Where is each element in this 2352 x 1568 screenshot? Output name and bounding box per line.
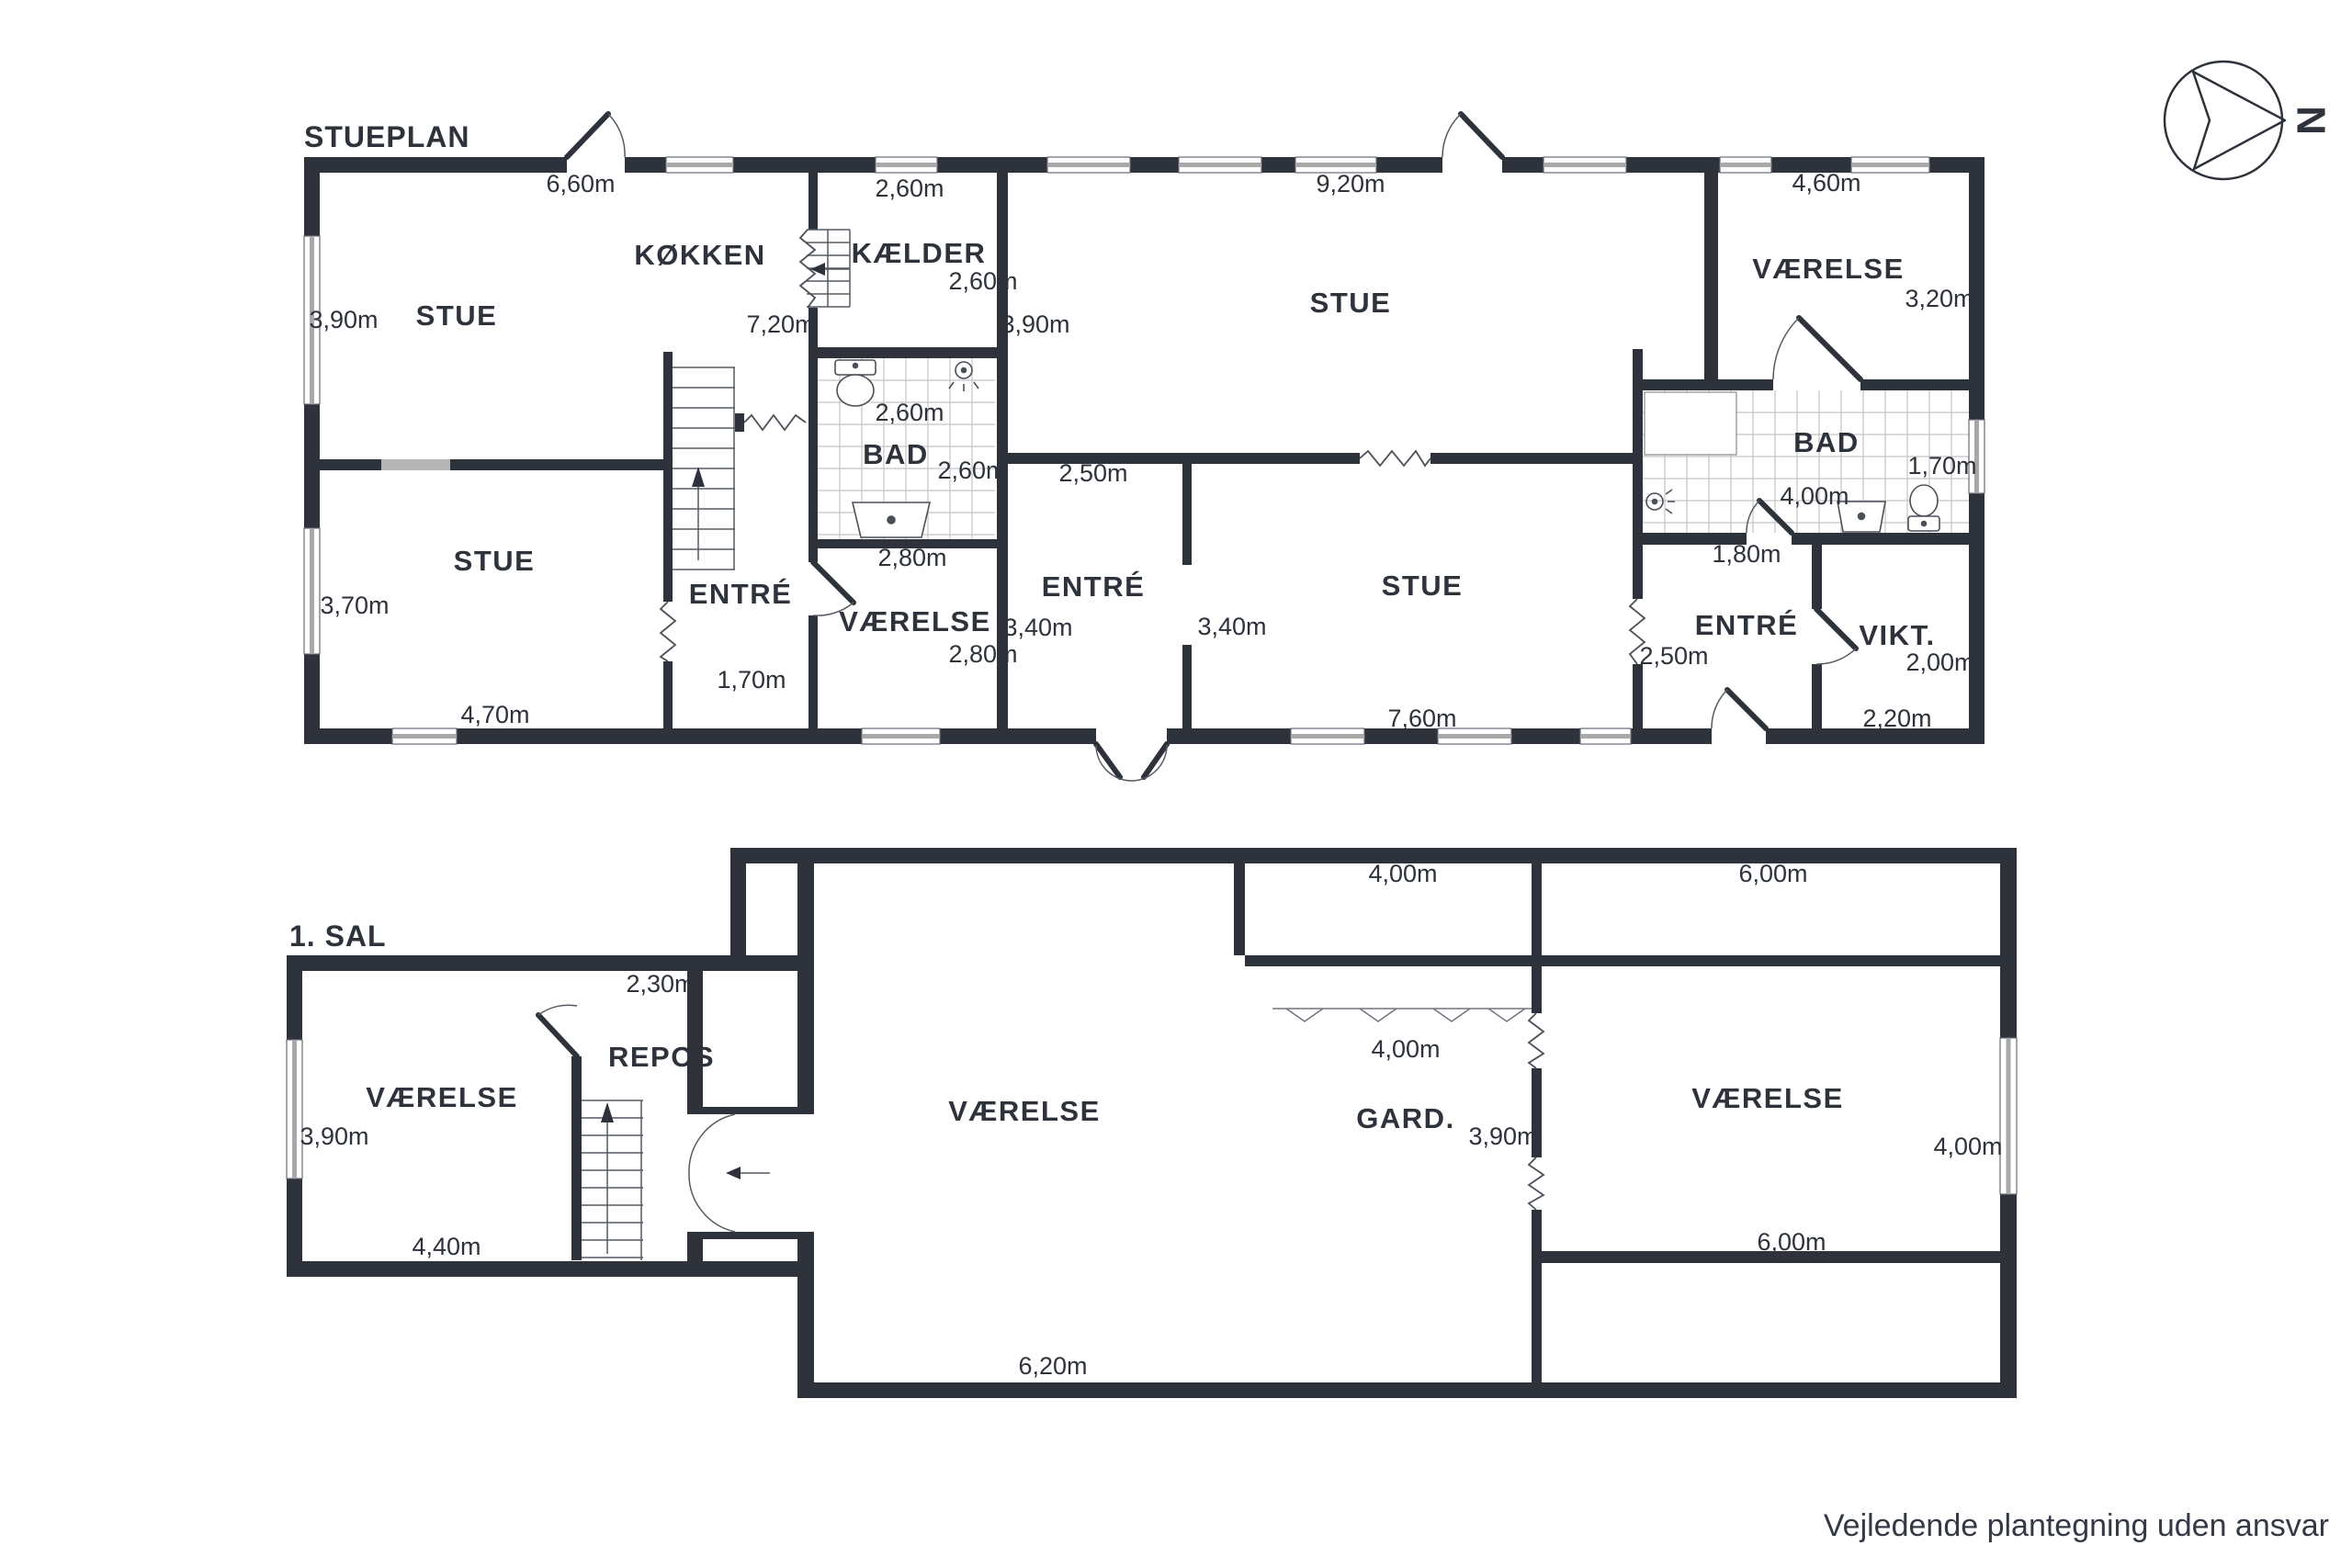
zigzag-openings-ground — [661, 230, 1645, 664]
dim-label: 4,60m — [1792, 169, 1860, 197]
dim-label: 6,00m — [1757, 1228, 1826, 1256]
room-label-entre-middle: ENTRÉ — [1042, 570, 1146, 603]
stairs-up-arrow — [692, 467, 705, 487]
room-label-kaelder: KÆLDER — [852, 237, 987, 269]
dim-label: 6,20m — [1018, 1352, 1087, 1380]
toilet-left-icon — [835, 360, 876, 406]
floorplan-page: STUEPLAN STUE KØKKEN KÆLDER STUE ENTRÉ B… — [0, 0, 2352, 1568]
stairs-ground — [673, 367, 735, 570]
room-label-stue-middle: STUE — [1382, 570, 1464, 602]
entry-direction-arrow — [726, 1167, 741, 1179]
room-label-kokken: KØKKEN — [634, 239, 765, 271]
interior-opening — [381, 459, 450, 470]
dim-label: 7,20m — [746, 310, 815, 338]
wardrobe-rail — [1272, 1009, 1532, 1021]
room-label-repos: REPOS — [608, 1041, 715, 1073]
room-label-vaerelse-sal-left: VÆRELSE — [366, 1081, 518, 1113]
room-label-vaerelse-sal-middle: VÆRELSE — [948, 1095, 1101, 1127]
dim-label: 6,00m — [1738, 860, 1807, 887]
shower-right-icon — [1646, 490, 1675, 513]
compass-circle — [2165, 62, 2282, 179]
dim-label: 2,20m — [1862, 705, 1931, 732]
dim-label: 7,60m — [1387, 705, 1456, 732]
dim-label: 2,80m — [877, 544, 946, 571]
dim-label: 2,60m — [948, 267, 1017, 295]
dim-label: 3,90m — [300, 1122, 368, 1150]
dim-label: 4,00m — [1780, 482, 1849, 510]
ground-floor-title: STUEPLAN — [304, 120, 469, 153]
dim-label: 4,70m — [460, 701, 529, 728]
room-label-stue-lowerleft: STUE — [454, 545, 536, 577]
dim-label: 4,00m — [1371, 1035, 1440, 1063]
room-label-entre-right: ENTRÉ — [1695, 609, 1799, 641]
dim-label: 1,80m — [1712, 540, 1781, 568]
room-label-vaerelse-right: VÆRELSE — [1752, 253, 1905, 285]
dim-label: 3,70m — [320, 592, 389, 619]
sink-left-icon — [853, 502, 930, 537]
compass: N — [2165, 62, 2334, 179]
stairs-up-arrow-first — [601, 1102, 614, 1122]
room-label-bad-left: BAD — [863, 438, 929, 470]
room-label-bad-right: BAD — [1793, 426, 1860, 458]
dim-label: 2,00m — [1905, 649, 1974, 676]
dim-label: 2,50m — [1058, 459, 1127, 487]
windows-first — [287, 1038, 2017, 1194]
dim-label: 1,70m — [717, 666, 786, 694]
dim-label: 3,90m — [1001, 310, 1069, 338]
ground-floor-plan: STUEPLAN STUE KØKKEN KÆLDER STUE ENTRÉ B… — [304, 114, 1984, 781]
dim-label: 4,00m — [1368, 860, 1437, 887]
dim-label: 2,60m — [875, 175, 944, 202]
walls-first — [287, 848, 2017, 1398]
room-label-vaerelse-left: VÆRELSE — [839, 605, 991, 637]
north-label: N — [2289, 106, 2334, 135]
dim-label: 3,20m — [1905, 285, 1973, 312]
stairs-first — [582, 1100, 643, 1260]
dim-label: 2,30m — [626, 970, 695, 998]
stairs-down-arrow — [810, 263, 825, 276]
dim-label: 3,40m — [1003, 614, 1072, 641]
shower-cabin-box — [1645, 392, 1736, 455]
dim-label: 2,50m — [1639, 642, 1708, 670]
dim-label: 9,20m — [1316, 170, 1385, 197]
footer-disclaimer: Vejledende plantegning uden ansvar — [1824, 1508, 2329, 1543]
dim-label: 3,40m — [1197, 613, 1266, 640]
toilet-right-icon — [1908, 485, 1939, 531]
dim-label: 6,60m — [546, 170, 615, 197]
room-label-gard: GARD. — [1356, 1102, 1454, 1134]
room-label-stue-big: STUE — [1310, 287, 1392, 319]
dim-label: 2,80m — [948, 640, 1017, 668]
room-label-entre-left: ENTRÉ — [689, 578, 793, 610]
first-floor-title: 1. SAL — [289, 919, 387, 953]
dim-label: 2,60m — [937, 457, 1006, 484]
dim-label: 3,90m — [309, 306, 378, 333]
dim-label: 3,90m — [1468, 1122, 1537, 1150]
floorplan-drawing: STUEPLAN STUE KØKKEN KÆLDER STUE ENTRÉ B… — [0, 0, 2352, 1568]
room-label-stue-topleft: STUE — [416, 299, 498, 332]
dim-label: 2,60m — [875, 399, 944, 426]
room-label-vaerelse-sal-right: VÆRELSE — [1691, 1082, 1844, 1114]
dim-label: 4,40m — [412, 1233, 481, 1260]
room-label-vikt: VIKT. — [1859, 619, 1935, 651]
dim-label: 4,00m — [1933, 1133, 2002, 1160]
dim-label: 1,70m — [1907, 452, 1976, 479]
first-floor-plan: 1. SAL VÆRELSE REPOS VÆRELSE GARD. VÆREL… — [287, 848, 2017, 1398]
shower-left-icon — [949, 362, 978, 391]
